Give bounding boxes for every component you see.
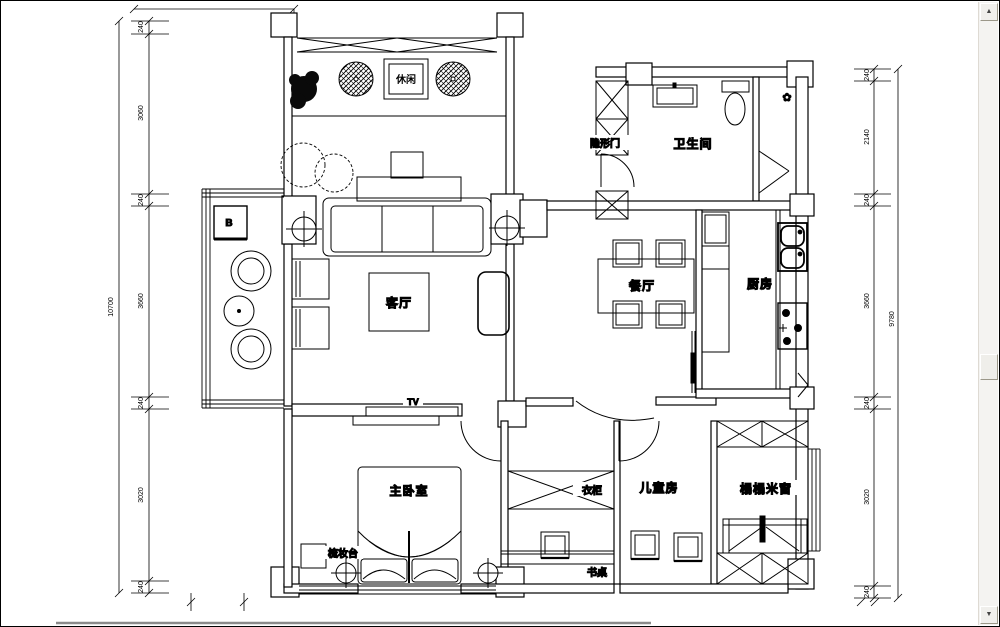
sofa <box>323 198 491 256</box>
sofa-back-table <box>357 177 461 201</box>
tatami-bed <box>723 516 807 553</box>
bathroom: 隐形门 卫生间 ✿ <box>579 81 792 219</box>
dining-room: 餐厅 <box>598 240 694 328</box>
dim-left-1: 3060 <box>138 105 145 121</box>
tatami-room-label: 榻榻米窗 <box>739 481 792 496</box>
dining-chair <box>613 240 642 267</box>
scroll-down-icon: ▼ <box>986 611 993 618</box>
toilet <box>722 81 749 125</box>
living-room: 客厅 TV <box>286 152 525 425</box>
entry-arc <box>576 401 654 420</box>
bathroom-door-arc <box>601 154 634 187</box>
kitchen-label: 厨房 <box>747 276 773 291</box>
column <box>520 200 547 237</box>
bathroom-label: 卫生间 <box>673 136 712 151</box>
children-room-door-arc <box>619 421 659 461</box>
wall <box>284 409 292 587</box>
dimension-labels-right: 240 2140 240 3660 240 3020 240 9780 <box>864 69 896 598</box>
wall <box>620 584 788 593</box>
cabinet-b-label: B <box>225 218 232 229</box>
tv-wall <box>292 404 462 416</box>
console-table <box>391 152 423 178</box>
column <box>626 63 652 85</box>
column <box>497 13 523 37</box>
stool <box>674 533 702 561</box>
dim-left-2: 240 <box>138 194 145 206</box>
tv-label: TV <box>407 397 419 407</box>
wall <box>796 77 808 589</box>
shell-chair <box>231 251 271 291</box>
kitchen: 厨房 <box>691 210 808 397</box>
dim-ticks-right <box>854 65 902 602</box>
plant-dark <box>289 71 319 109</box>
wall <box>501 421 508 584</box>
master-bedroom-label: 主卧室 <box>389 483 428 498</box>
pillow <box>361 559 407 582</box>
dim-left-5: 3020 <box>138 487 145 503</box>
side-table <box>478 272 509 335</box>
wall <box>461 584 614 593</box>
dining-chair <box>656 301 685 328</box>
dim-right-total: 9780 <box>889 311 896 327</box>
dim-left-4: 240 <box>138 397 145 409</box>
dimension-bottom-partial <box>56 593 879 623</box>
master-bedroom-door-arc <box>461 421 501 461</box>
dimension-lines-right <box>854 65 902 602</box>
tall-cabinet <box>702 212 729 352</box>
vertical-scrollbar[interactable]: ▲ ▼ <box>978 2 998 625</box>
dim-right-6: 240 <box>864 586 871 598</box>
floor-plan-canvas: 240 3060 240 3660 240 3020 240 10700 240… <box>1 1 979 627</box>
scroll-up-icon: ▲ <box>986 8 993 15</box>
children-room: 儿童房 <box>631 480 702 561</box>
doors <box>461 397 659 461</box>
wall <box>506 37 514 207</box>
tv-cabinet-lower <box>353 416 439 425</box>
dim-right-5: 3020 <box>864 489 871 505</box>
wall <box>547 201 809 210</box>
master-bedroom: 主卧室 梳妆台 <box>301 467 503 588</box>
column <box>790 387 814 409</box>
wall <box>284 584 358 593</box>
scroll-up-button[interactable]: ▲ <box>980 3 998 21</box>
stool <box>631 531 659 559</box>
dim-right-0: 240 <box>864 69 871 81</box>
leisure-label: 休闲 <box>395 73 416 86</box>
shell-chair <box>231 329 271 369</box>
wall <box>506 244 514 401</box>
pole <box>691 331 695 393</box>
dining-label: 餐厅 <box>629 278 655 293</box>
dim-right-3: 3660 <box>864 293 871 309</box>
dim-left-6: 240 <box>138 581 145 593</box>
dim-left-0: 240 <box>138 21 145 33</box>
hall: 衣柜 书桌 <box>501 471 614 579</box>
wall <box>696 210 702 391</box>
dining-chair <box>613 301 642 328</box>
column <box>790 194 814 216</box>
wall <box>284 244 292 406</box>
wall <box>526 398 573 406</box>
dressing-table <box>301 544 326 568</box>
pillow <box>412 559 458 582</box>
leisure-balcony: 休闲 <box>281 59 470 192</box>
wall <box>711 421 717 584</box>
desk-label: 书桌 <box>587 566 607 579</box>
armchair <box>292 307 329 349</box>
tatami-bay-window <box>808 449 820 551</box>
cabinet-x-top <box>717 421 808 447</box>
viewer-window: 240 3060 240 3660 240 3020 240 10700 240… <box>0 0 1000 627</box>
scroll-down-button[interactable]: ▼ <box>980 606 998 624</box>
dim-right-4: 240 <box>864 397 871 409</box>
balcony-railing <box>297 38 497 52</box>
dining-chair <box>656 240 685 267</box>
dim-right-1: 2140 <box>864 129 871 145</box>
fold-door <box>759 151 789 193</box>
desk-chair <box>541 532 569 558</box>
hidden-door-label: 隐形门 <box>590 137 620 150</box>
dim-left-total: 10700 <box>108 297 115 317</box>
children-room-label: 儿童房 <box>638 480 678 495</box>
dressing-table-label: 梳妆台 <box>327 547 358 560</box>
left-balcony: B <box>214 206 271 369</box>
living-room-label: 客厅 <box>385 295 412 310</box>
column <box>271 13 297 37</box>
dim-left-3: 3660 <box>138 293 145 309</box>
dim-right-2: 240 <box>864 194 871 206</box>
dimension-labels-left: 240 3060 240 3660 240 3020 240 10700 <box>108 21 145 593</box>
fan-flower-icon: ✿ <box>782 92 791 104</box>
wall <box>753 77 759 201</box>
scrollbar-thumb[interactable] <box>980 354 998 380</box>
wardrobe-label: 衣柜 <box>582 484 602 497</box>
armchair <box>292 259 329 299</box>
